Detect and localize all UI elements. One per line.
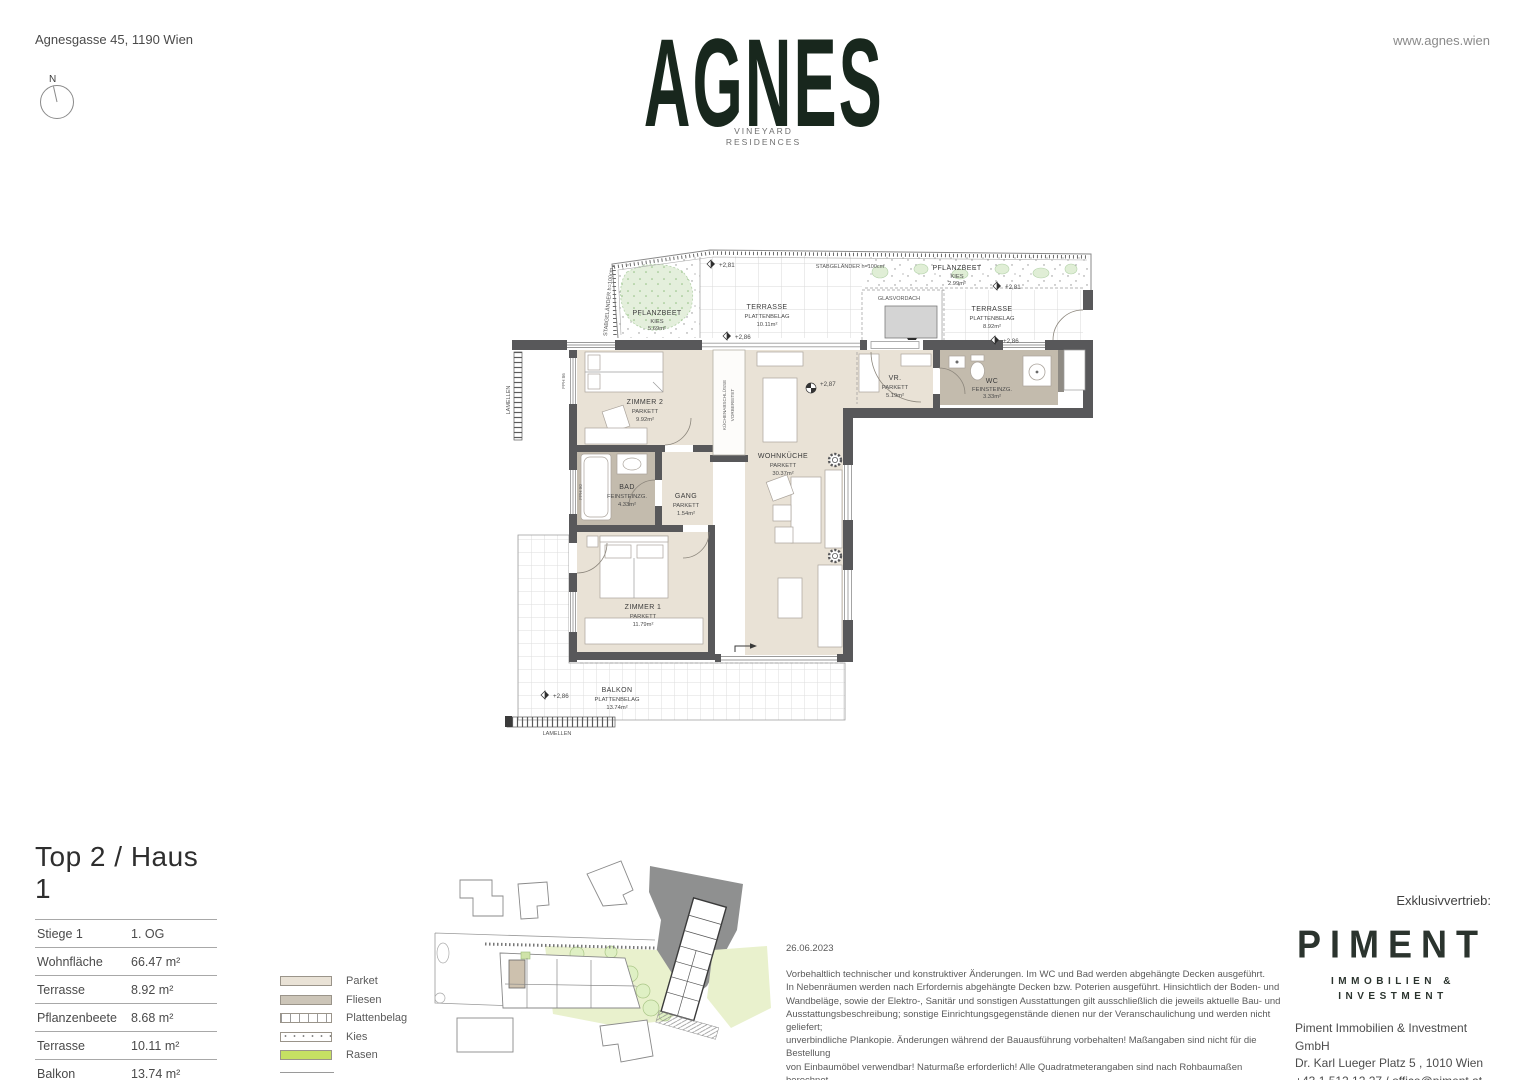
svg-text:2.99m²: 2.99m² <box>948 281 966 287</box>
disclaimer-line: unverbindliche Plankopie. Änderungen wäh… <box>786 1034 1286 1060</box>
material-legend: Parket Fliesen Plattenbelag Kies Rasen <box>280 972 407 1073</box>
plan-sheet: Agnesgasse 45, 1190 Wien www.agnes.wien … <box>0 0 1527 1080</box>
piment-tagline-1: IMMOBILIEN & <box>1295 974 1491 989</box>
distributor-contact: Piment Immobilien & Investment GmbH Dr. … <box>1295 1020 1491 1080</box>
svg-text:GANG: GANG <box>675 493 697 500</box>
legend-label: Parket <box>346 975 378 987</box>
disclaimer-line: Ausstattungsbeschreibung; sonstige Einri… <box>786 1008 1286 1034</box>
svg-text:TERRASSE: TERRASSE <box>972 306 1013 313</box>
svg-text:ZIMMER 2: ZIMMER 2 <box>627 399 664 406</box>
svg-text:1.54m²: 1.54m² <box>677 511 695 517</box>
unit-row-wohnflaeche: Wohnfläche 66.47 m² <box>35 947 217 975</box>
legend-label: Plattenbelag <box>346 1012 407 1024</box>
legend-item-rasen: Rasen <box>280 1046 407 1065</box>
unit-info-panel: Top 2 / Haus 1 Stiege 1 1. OG Wohnfläche… <box>35 841 217 1080</box>
svg-text:+2,81: +2,81 <box>719 262 735 269</box>
svg-text:WC: WC <box>986 378 998 385</box>
disclaimer-line: In Nebenräumen werden nach Erfordernis a… <box>786 981 1286 994</box>
svg-text:KIES: KIES <box>950 274 963 280</box>
railing-label-left: STABGELÄNDER h=100cm <box>602 267 615 336</box>
unit-row-value: 66.47 m² <box>131 955 180 969</box>
svg-text:13.74m²: 13.74m² <box>606 705 627 711</box>
kitchen-prep-strip <box>713 350 745 455</box>
svg-text:PARKETT: PARKETT <box>882 385 909 391</box>
unit-row-label: Pflanzenbeete <box>37 1011 131 1025</box>
svg-text:+2,86: +2,86 <box>553 693 569 700</box>
svg-text:8.92m²: 8.92m² <box>983 324 1001 330</box>
svg-text:KIES: KIES <box>650 319 663 325</box>
brand-logo-subtitle: VINEYARD RESIDENCES <box>0 126 1527 148</box>
distributor-label: Exklusivvertrieb: <box>1295 893 1491 908</box>
unit-row-label: Wohnfläche <box>37 955 131 969</box>
kitchen-prep-label-1: KÜCHENABSCHLÜSSE <box>721 380 727 430</box>
svg-text:FEINSTEINZG.: FEINSTEINZG. <box>607 494 647 500</box>
unit-row-value: 8.68 m² <box>131 1011 173 1025</box>
svg-text:+2,86: +2,86 <box>735 334 751 341</box>
svg-text:VR.: VR. <box>889 375 902 382</box>
svg-text:9.92m²: 9.92m² <box>636 417 654 423</box>
unit-row-value: 1. OG <box>131 927 164 941</box>
lamellen-label-left: LAMELLEN <box>506 386 512 415</box>
site-plan <box>425 858 781 1076</box>
svg-text:PARKETT: PARKETT <box>770 463 797 469</box>
brand-subtitle-line2: RESIDENCES <box>0 137 1527 148</box>
unit-row-terrasse-2: Terrasse 10.11 m² <box>35 1031 217 1059</box>
svg-text:PARKETT: PARKETT <box>673 503 700 509</box>
kies-swatch-icon <box>280 1032 332 1042</box>
svg-text:+2,81: +2,81 <box>1005 284 1021 291</box>
column-symbol <box>829 550 841 562</box>
legend-scale-line <box>280 1072 334 1073</box>
svg-text:4.33m²: 4.33m² <box>618 502 636 508</box>
unit-title: Top 2 / Haus 1 <box>35 841 217 905</box>
unit-row-label: Terrasse <box>37 1039 131 1053</box>
unit-row-balkon: Balkon 13.74 m² <box>35 1059 217 1080</box>
svg-text:PLATTENBELAG: PLATTENBELAG <box>595 697 640 703</box>
lamellen-strip-left <box>514 352 522 440</box>
svg-text:PLATTENBELAG: PLATTENBELAG <box>745 314 790 320</box>
legend-label: Kies <box>346 1031 367 1043</box>
disclaimer-block: 26.06.2023 Vorbehaltlich technischer und… <box>786 942 1286 1080</box>
unit-row-terrasse-1: Terrasse 8.92 m² <box>35 975 217 1003</box>
svg-text:PFLANZBEET: PFLANZBEET <box>632 310 681 317</box>
plattenbelag-swatch-icon <box>280 1013 332 1023</box>
floorplan-drawing: ZIMMER 2 PARKETT 9.92m² BAD FEINSTEINZG.… <box>505 240 1105 740</box>
svg-text:5.19m²: 5.19m² <box>886 393 904 399</box>
svg-text:PARKETT: PARKETT <box>630 614 657 620</box>
piment-tagline-2: INVESTMENT <box>1295 989 1491 1004</box>
svg-text:+2,87: +2,87 <box>820 381 836 388</box>
svg-text:BALKON: BALKON <box>602 687 633 694</box>
siteplan-row-building <box>500 952 640 1008</box>
legend-label: Rasen <box>346 1049 378 1061</box>
window-sill-label-fph90: FPH 90 <box>578 484 583 500</box>
svg-text:3.33m²: 3.33m² <box>983 394 1001 400</box>
legend-label: Fliesen <box>346 994 381 1006</box>
legend-item-kies: Kies <box>280 1028 407 1047</box>
distributor-company: Piment Immobilien & Investment GmbH <box>1295 1020 1491 1055</box>
disclaimer-line: Vorbehaltlich technischer und konstrukti… <box>786 968 1286 981</box>
svg-text:30.37m²: 30.37m² <box>772 471 793 477</box>
svg-text:10.11m²: 10.11m² <box>757 322 778 328</box>
svg-text:11.79m²: 11.79m² <box>633 622 654 628</box>
disclaimer-line: Wandbeläge, sowie der Elektro-, Sanitär … <box>786 995 1286 1008</box>
lamellen-strip-bottom <box>507 717 615 727</box>
svg-text:PFLANZBEET: PFLANZBEET <box>932 265 981 272</box>
svg-text:FEINSTEINZG.: FEINSTEINZG. <box>972 387 1012 393</box>
siteplan-hatch-strip <box>485 944 655 948</box>
unit-row-value: 8.92 m² <box>131 983 173 997</box>
unit-row-label: Balkon <box>37 1067 131 1080</box>
svg-text:PARKETT: PARKETT <box>632 409 659 415</box>
svg-text:WOHNKÜCHE: WOHNKÜCHE <box>758 452 808 460</box>
svg-text:TERRASSE: TERRASSE <box>747 304 788 311</box>
legend-item-plattenbelag: Plattenbelag <box>280 1009 407 1028</box>
kitchen-prep-label-2: VORBEREITET <box>730 389 735 422</box>
unit-row-value: 13.74 m² <box>131 1067 180 1080</box>
legend-item-parket: Parket <box>280 972 407 991</box>
distributor-address: Dr. Karl Lueger Platz 5 , 1010 Wien <box>1295 1055 1491 1073</box>
fliesen-swatch-icon <box>280 995 332 1005</box>
unit-row-pflanzenbeete: Pflanzenbeete 8.68 m² <box>35 1003 217 1031</box>
unit-row-label: Stiege 1 <box>37 927 131 941</box>
svg-text:+2,86: +2,86 <box>1003 338 1019 345</box>
unit-row-stiege: Stiege 1 1. OG <box>35 919 217 947</box>
unit-row-label: Terrasse <box>37 983 131 997</box>
lamellen-label-bottom: LAMELLEN <box>543 731 572 737</box>
parket-swatch-icon <box>280 976 332 986</box>
svg-text:ZIMMER 1: ZIMMER 1 <box>625 604 662 611</box>
legend-item-fliesen: Fliesen <box>280 991 407 1010</box>
brand-subtitle-line1: VINEYARD <box>0 126 1527 137</box>
piment-logo: PIMENT <box>1297 922 1491 967</box>
svg-text:5.69m²: 5.69m² <box>648 326 666 332</box>
column-symbol <box>829 454 841 466</box>
distributor-block: Exklusivvertrieb: PIMENT IMMOBILIEN & IN… <box>1295 893 1491 1080</box>
plan-date: 26.06.2023 <box>786 942 1286 955</box>
canopy-label: GLASVORDACH <box>878 296 920 302</box>
railing-label-top: STABGELÄNDER h=100cm <box>816 263 885 270</box>
survey-point-symbol <box>806 383 816 393</box>
rasen-swatch-icon <box>280 1050 332 1060</box>
distributor-phone-email: +43 1 512 12 27 / office@piment.at <box>1295 1073 1491 1080</box>
unit-row-value: 10.11 m² <box>131 1039 179 1053</box>
disclaimer-line: von Einbaumöbel verwendbar! Naturmaße er… <box>786 1061 1286 1080</box>
svg-text:BAD: BAD <box>619 484 635 491</box>
window-sill-label-fph86: FPH 86 <box>561 373 566 389</box>
svg-text:PLATTENBELAG: PLATTENBELAG <box>970 316 1015 322</box>
brand-logo: AGNES <box>0 20 1527 118</box>
